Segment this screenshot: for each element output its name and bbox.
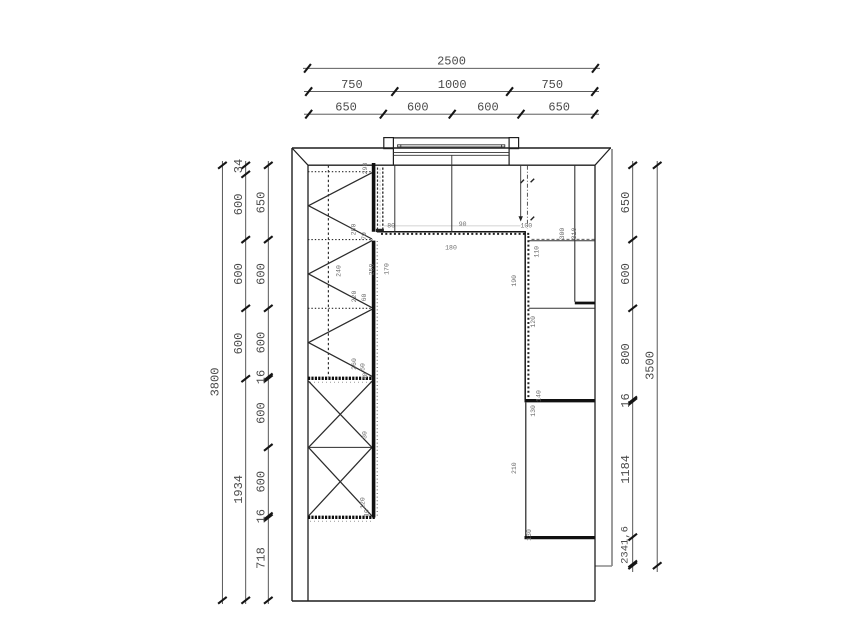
svg-text:250: 250 [368, 264, 375, 276]
svg-text:800: 800 [619, 343, 633, 365]
svg-text:40: 40 [362, 373, 369, 381]
svg-text:1934: 1934 [232, 475, 246, 504]
svg-text:600: 600 [255, 263, 269, 285]
svg-text:10: 10 [364, 509, 371, 517]
svg-text:70: 70 [361, 232, 368, 240]
svg-text:190: 190 [511, 275, 518, 287]
svg-text:50: 50 [360, 363, 367, 371]
svg-text:140: 140 [535, 390, 542, 402]
svg-text:3500: 3500 [643, 351, 657, 380]
svg-text:600: 600 [477, 101, 499, 115]
svg-text:180: 180 [445, 244, 457, 251]
svg-text:650: 650 [335, 101, 357, 115]
svg-text:2341,6: 2341,6 [620, 526, 632, 564]
svg-text:120: 120 [360, 497, 367, 509]
svg-text:16: 16 [255, 509, 269, 523]
svg-text:600: 600 [255, 332, 269, 354]
svg-text:130: 130 [526, 529, 533, 541]
svg-text:600: 600 [255, 402, 269, 424]
svg-text:600: 600 [255, 471, 269, 493]
svg-text:3800: 3800 [209, 368, 223, 397]
svg-text:210: 210 [511, 462, 518, 474]
svg-text:110: 110 [533, 246, 540, 258]
svg-text:120: 120 [530, 316, 537, 328]
svg-text:240: 240 [336, 265, 343, 277]
svg-text:60: 60 [361, 294, 368, 302]
svg-text:600: 600 [232, 194, 246, 216]
svg-text:30: 30 [361, 431, 368, 439]
svg-text:280: 280 [351, 224, 358, 236]
svg-text:650: 650 [548, 101, 570, 115]
svg-text:1184: 1184 [619, 455, 633, 484]
svg-text:220: 220 [351, 291, 358, 303]
svg-text:600: 600 [232, 333, 246, 355]
svg-text:600: 600 [619, 263, 633, 285]
svg-text:260: 260 [351, 358, 358, 370]
svg-text:750: 750 [541, 78, 563, 92]
svg-text:600: 600 [407, 101, 429, 115]
svg-text:90: 90 [459, 221, 467, 228]
svg-text:310: 310 [571, 228, 578, 240]
svg-text:2500: 2500 [437, 55, 466, 69]
svg-text:650: 650 [619, 192, 633, 214]
svg-text:600: 600 [232, 263, 246, 285]
svg-text:1000: 1000 [438, 78, 467, 92]
svg-text:650: 650 [255, 192, 269, 214]
svg-text:300: 300 [559, 228, 566, 240]
svg-text:16: 16 [255, 370, 269, 384]
svg-text:130: 130 [530, 405, 537, 417]
svg-text:298: 298 [362, 163, 369, 175]
svg-text:718: 718 [255, 547, 269, 569]
svg-text:16: 16 [619, 393, 633, 407]
svg-text:170: 170 [384, 263, 391, 275]
svg-text:34: 34 [232, 159, 246, 173]
svg-text:100: 100 [520, 222, 532, 229]
svg-text:80: 80 [387, 222, 395, 229]
svg-text:750: 750 [341, 78, 363, 92]
